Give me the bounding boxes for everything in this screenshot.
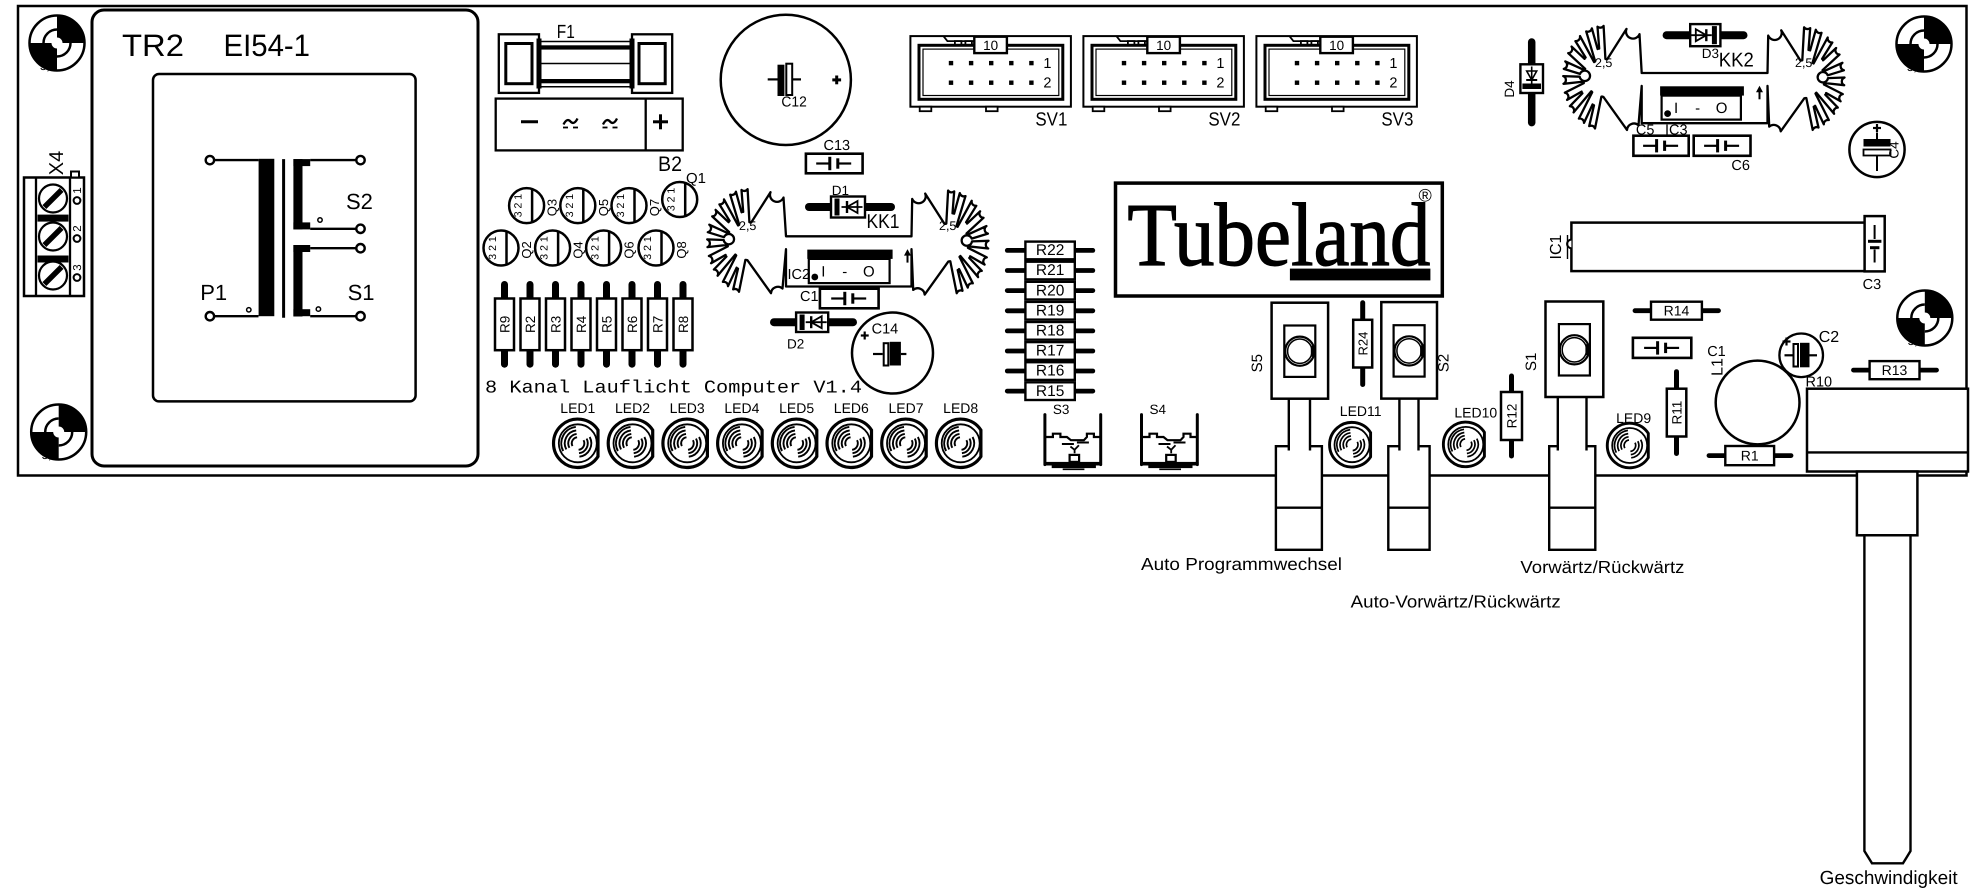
svg-text:Q7: Q7: [647, 199, 662, 216]
svg-text:R11: R11: [1670, 401, 1685, 425]
svg-text:I: I: [1674, 100, 1678, 117]
svg-text:Vorwärtz/Rückwärtz: Vorwärtz/Rückwärtz: [1520, 557, 1684, 577]
svg-text:S2: S2: [1436, 354, 1453, 372]
svg-text:10: 10: [1329, 38, 1344, 53]
svg-text:R5: R5: [600, 316, 615, 333]
svg-text:3 2 1: 3 2 1: [539, 236, 551, 260]
svg-text:Q8: Q8: [674, 241, 689, 258]
svg-text:C12: C12: [781, 95, 806, 111]
svg-text:Auto Programmwechsel: Auto Programmwechsel: [1141, 554, 1342, 574]
svg-text:2,5: 2,5: [739, 219, 756, 233]
svg-text:2: 2: [1043, 76, 1051, 92]
svg-text:3 2 1: 3 2 1: [590, 236, 602, 260]
svg-text:I: I: [821, 264, 825, 281]
svg-text:-: -: [842, 264, 847, 281]
svg-text:10: 10: [1156, 38, 1171, 53]
svg-text:3 2 1: 3 2 1: [642, 236, 654, 260]
svg-text:LED6: LED6: [834, 400, 869, 416]
svg-text:Auto-Vorwärtz/Rückwärtz: Auto-Vorwärtz/Rückwärtz: [1351, 592, 1561, 612]
svg-text:8 Kanal Lauflicht Computer V1.: 8 Kanal Lauflicht Computer V1.4: [485, 379, 862, 399]
svg-text:Geschwindigkeit: Geschwindigkeit: [1820, 868, 1959, 889]
svg-text:C13: C13: [824, 138, 851, 154]
svg-text:3 2 1: 3 2 1: [513, 194, 525, 218]
svg-text:LED4: LED4: [724, 400, 759, 416]
svg-text:P1: P1: [200, 280, 227, 305]
svg-text:R13: R13: [1882, 362, 1908, 378]
svg-text:1: 1: [1216, 56, 1224, 72]
svg-text:IC2: IC2: [788, 267, 811, 283]
svg-text:-: -: [1695, 100, 1700, 117]
svg-text:S2: S2: [346, 189, 373, 214]
svg-text:X4: X4: [46, 151, 68, 175]
svg-text:R10: R10: [1806, 375, 1833, 391]
svg-text:1: 1: [1043, 56, 1051, 72]
svg-text:1: 1: [72, 187, 84, 193]
svg-text:D2: D2: [787, 337, 804, 352]
svg-text:IC1: IC1: [1548, 234, 1565, 259]
svg-text:S1: S1: [1523, 353, 1540, 371]
svg-text:R1: R1: [1741, 447, 1759, 463]
svg-text:2,5: 2,5: [1595, 56, 1612, 70]
svg-text:LED8: LED8: [943, 400, 978, 416]
svg-text:LED9: LED9: [1616, 410, 1651, 426]
svg-text:SV3: SV3: [1381, 110, 1413, 131]
svg-text:R17: R17: [1036, 343, 1064, 360]
svg-text:LED10: LED10: [1454, 405, 1497, 421]
svg-text:Q6: Q6: [622, 241, 637, 258]
svg-text:L1: L1: [1710, 358, 1727, 376]
svg-text:S3: S3: [1053, 402, 1070, 417]
svg-text:2: 2: [72, 225, 84, 231]
svg-text:SV2: SV2: [1208, 110, 1240, 131]
svg-text:R8: R8: [676, 316, 691, 333]
svg-text:R4: R4: [574, 315, 589, 333]
svg-text:3,2: 3,2: [42, 450, 58, 462]
svg-text:R12: R12: [1505, 404, 1520, 429]
svg-text:3,2: 3,2: [1907, 62, 1923, 74]
svg-text:R19: R19: [1036, 302, 1064, 319]
svg-text:R3: R3: [549, 316, 564, 333]
svg-text:Q5: Q5: [596, 199, 611, 216]
svg-text:1: 1: [1389, 56, 1397, 72]
svg-text:3,2: 3,2: [40, 61, 56, 73]
svg-text:Q3: Q3: [545, 199, 560, 216]
svg-text:3 2 1: 3 2 1: [666, 188, 678, 212]
svg-text:SV1: SV1: [1035, 110, 1067, 131]
svg-text:10: 10: [983, 38, 998, 53]
svg-text:C1: C1: [800, 289, 819, 305]
svg-text:O: O: [863, 264, 875, 281]
svg-text:R9: R9: [498, 316, 513, 333]
svg-text:R16: R16: [1036, 363, 1064, 380]
svg-text:TR2: TR2: [122, 28, 184, 63]
svg-text:R15: R15: [1036, 383, 1064, 400]
svg-text:S5: S5: [1249, 354, 1266, 372]
svg-text:C2: C2: [1819, 329, 1840, 346]
svg-text:R22: R22: [1036, 242, 1064, 259]
svg-text:3 2 1: 3 2 1: [615, 194, 627, 218]
svg-text:S1: S1: [348, 280, 375, 305]
svg-text:D4: D4: [1502, 80, 1517, 98]
svg-text:R6: R6: [625, 316, 640, 333]
svg-text:3: 3: [72, 264, 84, 270]
svg-text:LED7: LED7: [888, 400, 923, 416]
svg-text:D1: D1: [832, 183, 849, 198]
svg-text:R2: R2: [523, 316, 538, 333]
svg-text:®: ®: [1419, 186, 1432, 206]
svg-text:R18: R18: [1036, 323, 1064, 340]
svg-text:D3: D3: [1702, 46, 1719, 61]
svg-text:KK2: KK2: [1719, 49, 1754, 71]
svg-text:3 2 1: 3 2 1: [487, 236, 499, 260]
svg-text:Q4: Q4: [571, 241, 586, 258]
svg-text:C14: C14: [872, 321, 899, 337]
svg-text:KK1: KK1: [867, 211, 900, 233]
svg-text:LED3: LED3: [670, 400, 705, 416]
svg-text:B2: B2: [658, 153, 682, 176]
svg-text:C6: C6: [1731, 158, 1750, 174]
svg-text:3,2: 3,2: [1908, 336, 1924, 348]
svg-text:R14: R14: [1664, 302, 1690, 318]
svg-text:LED5: LED5: [779, 400, 814, 416]
svg-text:O: O: [1716, 100, 1728, 117]
svg-text:R24: R24: [1356, 332, 1371, 356]
svg-text:2: 2: [1389, 76, 1397, 92]
svg-text:2,5: 2,5: [1795, 56, 1812, 70]
svg-text:3 2 1: 3 2 1: [564, 194, 576, 218]
svg-text:F1: F1: [557, 22, 575, 43]
svg-text:S4: S4: [1150, 402, 1167, 417]
svg-text:R21: R21: [1036, 262, 1064, 279]
svg-text:R20: R20: [1036, 282, 1065, 299]
svg-text:C1: C1: [1707, 344, 1726, 360]
svg-text:EI54-1: EI54-1: [224, 28, 311, 63]
svg-text:Q2: Q2: [519, 241, 534, 258]
svg-text:C3: C3: [1863, 277, 1882, 293]
svg-text:2: 2: [1216, 76, 1224, 92]
svg-text:R7: R7: [651, 316, 666, 333]
svg-text:C4: C4: [1887, 141, 1902, 159]
svg-text:LED1: LED1: [560, 400, 595, 416]
svg-text:LED2: LED2: [615, 400, 650, 416]
svg-text:LED11: LED11: [1340, 403, 1382, 419]
svg-text:2,5: 2,5: [939, 219, 956, 233]
